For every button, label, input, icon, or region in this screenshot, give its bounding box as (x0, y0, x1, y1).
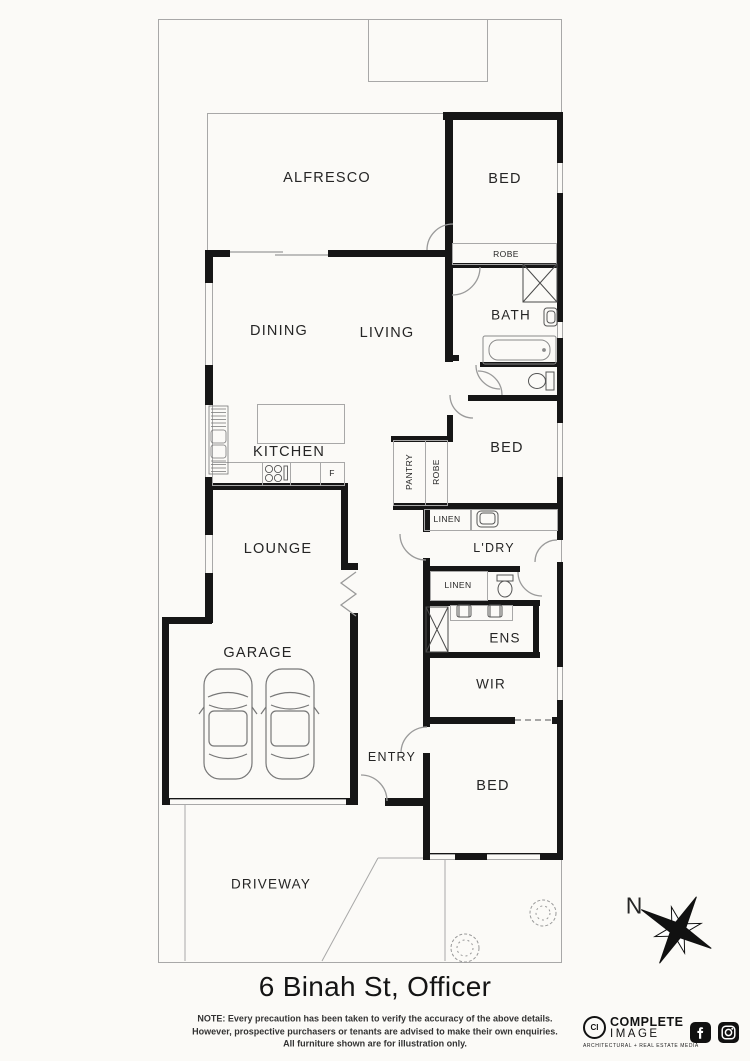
facebook-icon (690, 1022, 711, 1043)
room-label-ens: ENS (489, 631, 520, 646)
room-label-driveway: DRIVEWAY (231, 877, 311, 892)
room-label-bed: BED (490, 440, 523, 456)
cooktop-controls (284, 466, 288, 480)
cooktop-burner (265, 474, 272, 481)
room-label-living: LIVING (360, 325, 415, 341)
logo-tagline: ARCHITECTURAL + REAL ESTATE MEDIA (583, 1043, 699, 1049)
double-door (341, 572, 356, 616)
cooktop-burner (265, 465, 272, 472)
shower-cross (523, 264, 557, 302)
instagram-icon (718, 1022, 739, 1043)
door-arc (478, 371, 502, 395)
door-arc (476, 365, 500, 389)
logo-name-line2: IMAGE (610, 1028, 660, 1040)
page-title: 6 Binah St, Officer (259, 971, 491, 1003)
room-label-linen: LINEN (433, 514, 460, 524)
room-label-wir: WIR (476, 677, 506, 692)
kitchen-sink-hatch (211, 461, 226, 472)
bathtub-tap (543, 349, 546, 352)
disclaimer-line: NOTE: Every precaution has been taken to… (192, 1012, 558, 1025)
logo-monogram-icon: CI (583, 1016, 606, 1039)
room-label-robe: ROBE (493, 249, 519, 259)
room-label-bed: BED (488, 171, 521, 187)
tree (536, 906, 550, 920)
cooktop-burner (274, 465, 281, 472)
kitchen-sink-hatch (211, 409, 226, 427)
car (261, 669, 319, 779)
logo-name-line1: COMPLETE (610, 1015, 683, 1029)
toilet-bowl (529, 374, 546, 389)
room-label-garage: GARAGE (223, 645, 292, 661)
room-label-entry: ENTRY (368, 750, 416, 764)
fridge-label: F (329, 468, 335, 478)
tree (451, 934, 479, 962)
disclaimer-line: However, prospective purchasers or tenan… (192, 1025, 558, 1038)
door-arc (518, 572, 542, 596)
room-label-linen: LINEN (444, 580, 471, 590)
vanity-sink-line (490, 605, 500, 617)
door-arc (400, 534, 426, 560)
kitchen-sink-basin (211, 445, 226, 458)
room-label-bed: BED (476, 778, 509, 794)
cooktop-burner (274, 474, 281, 481)
room-label-alfresco: ALFRESCO (283, 170, 371, 186)
vanity-sink (547, 311, 555, 323)
room-label-lounge: LOUNGE (244, 541, 312, 557)
door-arc (361, 775, 387, 801)
toilet-bowl (498, 581, 512, 597)
compass-north-label: N (626, 893, 643, 920)
door-arc (452, 267, 480, 295)
shower-cross (426, 607, 448, 652)
disclaimer-line: All furniture shown are for illustration… (192, 1037, 558, 1050)
room-label-robe: ROBE (431, 459, 441, 485)
room-label-kitchen: KITCHEN (253, 444, 325, 460)
car (199, 669, 257, 779)
door-arc (427, 224, 453, 250)
laundry-trough-inner (480, 513, 495, 524)
room-label-ldry: L'DRY (473, 541, 515, 555)
door-arc (535, 540, 557, 562)
floorplan-page: ALFRESCO BED ROBE BATH DINING LIVING KIT… (0, 0, 750, 1061)
disclaimer-note: NOTE: Every precaution has been taken to… (192, 1012, 558, 1050)
tree (457, 940, 473, 956)
toilet-cistern (546, 372, 554, 390)
toilet-cistern (497, 575, 513, 581)
kitchen-sink-basin (211, 430, 226, 443)
door-arc (450, 395, 473, 418)
bathtub-inner (489, 340, 550, 360)
vanity-sink-line (459, 605, 469, 617)
driveway-line (322, 858, 378, 961)
tree (530, 900, 556, 926)
room-label-dining: DINING (250, 323, 308, 339)
room-label-pantry: PANTRY (404, 454, 414, 490)
sliding-door (230, 252, 328, 255)
room-label-bath: BATH (491, 308, 531, 323)
